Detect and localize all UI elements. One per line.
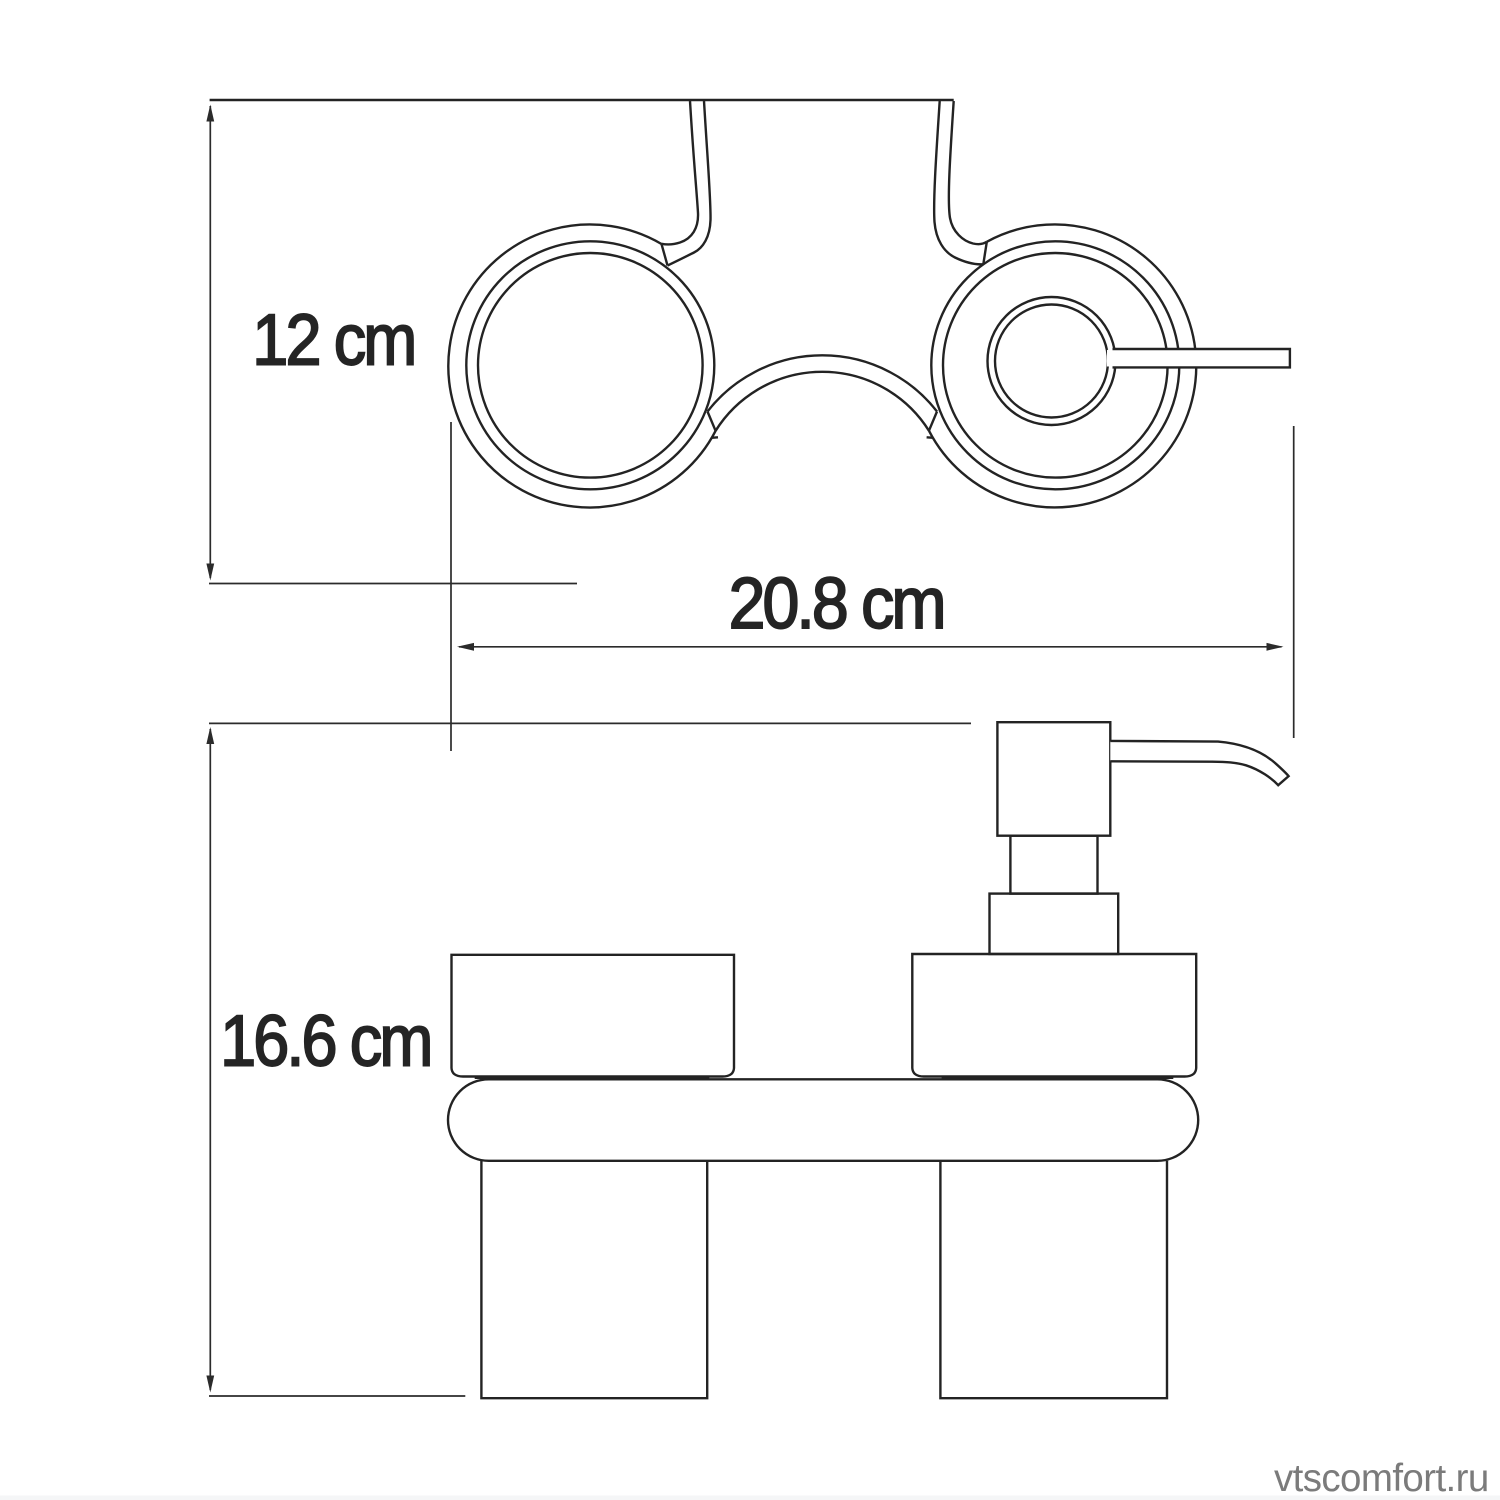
- svg-text:12 cm: 12 cm: [252, 299, 414, 380]
- svg-text:16.6 cm: 16.6 cm: [220, 1000, 430, 1081]
- svg-text:vtscomfort.ru: vtscomfort.ru: [1274, 1457, 1489, 1500]
- svg-text:20.8 cm: 20.8 cm: [729, 562, 944, 643]
